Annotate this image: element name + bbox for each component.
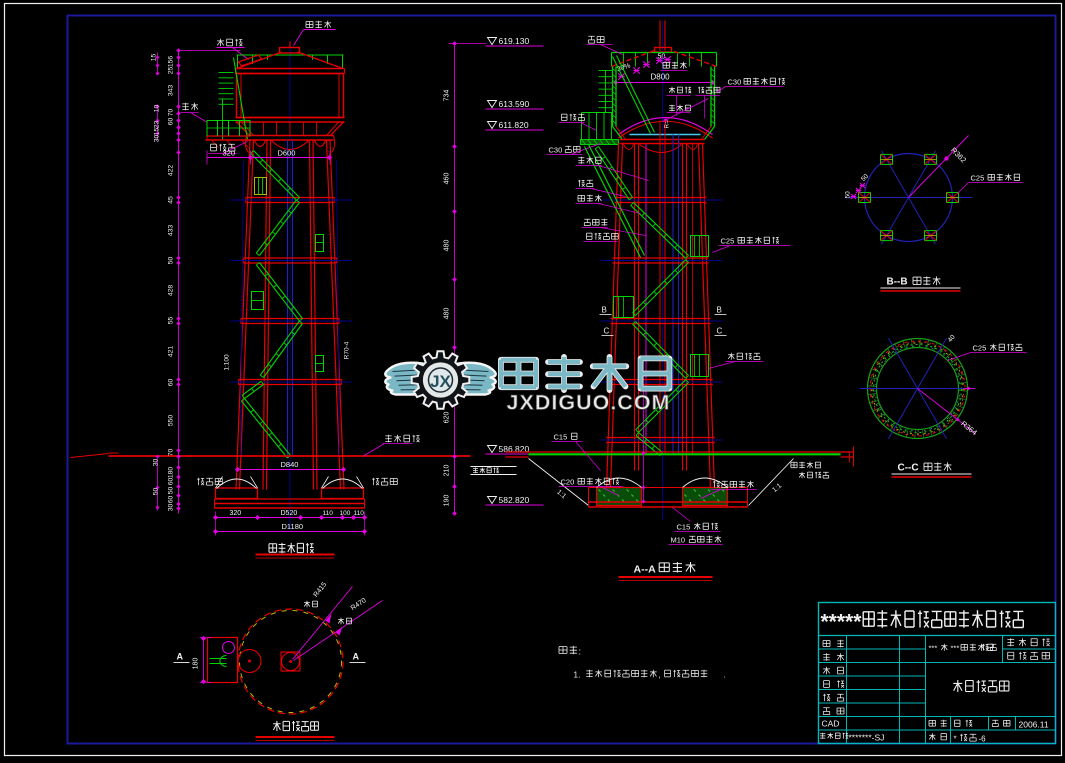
svg-text:15: 15 (154, 128, 161, 136)
svg-text:60: 60 (168, 118, 175, 126)
svg-text:*: * (954, 735, 957, 744)
svg-text:50: 50 (168, 487, 175, 495)
svg-text:C15: C15 (554, 433, 568, 442)
svg-text:A--A: A--A (634, 564, 657, 576)
svg-text:D840: D840 (281, 460, 299, 469)
svg-text:D600: D600 (278, 149, 296, 158)
svg-text:C15: C15 (677, 523, 691, 532)
svg-text:100: 100 (340, 510, 351, 517)
svg-text:C: C (717, 327, 723, 336)
svg-text:60: 60 (168, 379, 175, 387)
svg-text:180: 180 (193, 658, 200, 670)
svg-text:30: 30 (153, 459, 160, 467)
svg-text:320: 320 (223, 149, 236, 158)
svg-text:30: 30 (154, 135, 161, 143)
svg-text::: : (579, 647, 582, 657)
svg-text:734: 734 (444, 90, 451, 102)
svg-text:50: 50 (168, 257, 175, 265)
svg-text:-6: -6 (979, 735, 987, 744)
svg-text:180: 180 (168, 467, 175, 479)
svg-text:B--B: B--B (887, 277, 908, 288)
svg-text:*******-SJ: *******-SJ (849, 733, 885, 743)
svg-text:A: A (177, 652, 184, 662)
svg-text:50: 50 (845, 191, 852, 199)
svg-text:320: 320 (230, 510, 242, 517)
svg-text:23: 23 (154, 121, 161, 129)
svg-text:CAD: CAD (822, 719, 840, 729)
svg-text:55: 55 (168, 317, 175, 325)
svg-text:60: 60 (168, 478, 175, 486)
svg-text:B: B (717, 306, 722, 315)
svg-text:110: 110 (354, 510, 365, 517)
svg-text:422: 422 (168, 165, 175, 177)
svg-text:613.590: 613.590 (499, 99, 530, 109)
svg-text:D800: D800 (651, 73, 671, 82)
svg-text:*****: ***** (821, 611, 863, 634)
svg-text:421: 421 (168, 346, 175, 358)
svg-text:C--C: C--C (898, 463, 919, 474)
svg-text:110: 110 (323, 510, 334, 517)
svg-text:30: 30 (168, 504, 175, 512)
svg-text:50: 50 (153, 488, 160, 496)
svg-text:D520: D520 (281, 510, 298, 517)
svg-text:15: 15 (151, 54, 158, 62)
svg-text:428: 428 (168, 285, 175, 297)
svg-text:1:100: 1:100 (224, 354, 231, 371)
svg-text:R70-4: R70-4 (344, 341, 351, 359)
svg-text:343: 343 (168, 85, 175, 97)
svg-text:611.820: 611.820 (499, 120, 529, 130)
svg-text:210: 210 (444, 465, 451, 477)
svg-text:.: . (724, 671, 726, 680)
svg-text:620: 620 (444, 412, 451, 424)
svg-text:582.820: 582.820 (499, 495, 530, 505)
svg-text:***: *** (951, 644, 960, 653)
svg-text:460: 460 (444, 173, 451, 185)
svg-text:480: 480 (444, 308, 451, 320)
svg-text:JXDIGUO.COM: JXDIGUO.COM (507, 391, 671, 415)
svg-text:A: A (353, 652, 360, 662)
svg-text:70: 70 (168, 109, 175, 117)
svg-text:,: , (659, 671, 661, 680)
svg-text:10: 10 (154, 105, 161, 113)
svg-text:156: 156 (168, 56, 175, 68)
svg-text:.: . (579, 671, 581, 680)
svg-text:C30: C30 (728, 78, 742, 87)
svg-text:***: *** (929, 644, 938, 653)
svg-text:45: 45 (168, 196, 175, 204)
svg-text:C25: C25 (721, 237, 735, 246)
svg-text:C20: C20 (561, 478, 575, 487)
svg-text:D1180: D1180 (282, 522, 304, 531)
svg-text:70: 70 (168, 449, 175, 457)
svg-text:B: B (602, 306, 607, 315)
svg-text:C30: C30 (549, 146, 563, 155)
svg-text:M10: M10 (671, 536, 686, 545)
svg-text:2006.11: 2006.11 (1019, 720, 1049, 730)
svg-text:C: C (604, 327, 610, 336)
svg-text:480: 480 (444, 240, 451, 252)
svg-text:190: 190 (444, 495, 451, 507)
svg-text:550: 550 (168, 415, 175, 427)
svg-text:C25: C25 (971, 174, 985, 183)
svg-text:619.130: 619.130 (499, 36, 530, 46)
svg-text:JX: JX (430, 372, 451, 391)
svg-text:C25: C25 (973, 344, 987, 353)
svg-text:25: 25 (168, 67, 175, 75)
svg-text:433: 433 (168, 225, 175, 237)
svg-text:60: 60 (168, 496, 175, 504)
